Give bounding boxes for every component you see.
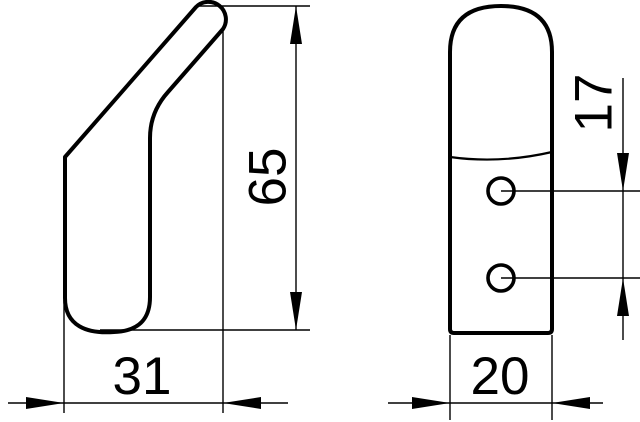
hole-spacing-arrow-up-icon [617,278,629,316]
technical-drawing-canvas: 65 31 17 [0,0,640,422]
hook-seam-curve [450,152,552,160]
hook-dimension-drawing: 65 31 17 [0,0,640,422]
width-arrow-left-icon [26,397,64,409]
width-dimension-label: 31 [113,347,172,406]
height-arrow-up-icon [290,6,302,44]
front-width-arrow-left-icon [412,397,450,409]
front-width-dimension-label: 20 [471,347,530,406]
height-arrow-down-icon [290,292,302,330]
front-view: 17 20 [388,6,640,420]
hook-side-outline [65,2,226,332]
side-view: 65 31 [8,2,310,413]
hole-spacing-dimension-label: 17 [565,74,624,133]
width-arrow-right-icon [223,397,261,409]
hole-spacing-arrow-down-icon [617,153,629,191]
front-width-arrow-right-icon [552,397,590,409]
height-dimension-label: 65 [239,148,298,207]
